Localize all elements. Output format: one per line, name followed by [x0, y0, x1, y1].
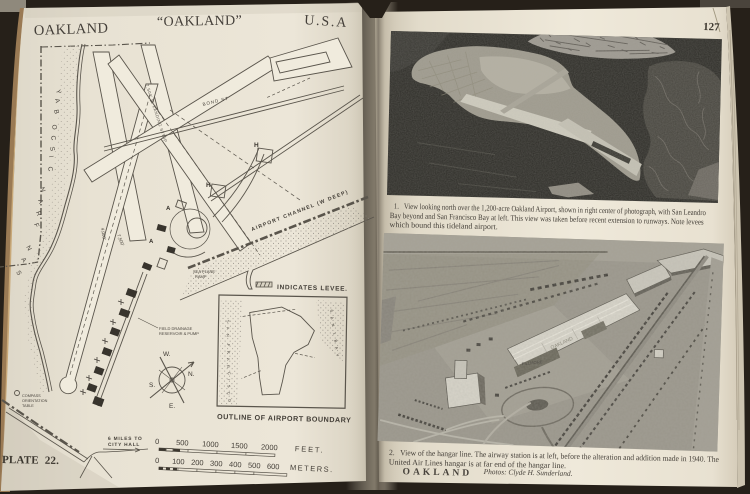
- svg-text:“OAKLAND”: “OAKLAND”: [157, 13, 242, 29]
- svg-text:OAKLAND: OAKLAND: [402, 467, 472, 478]
- svg-text:Photos: Clyde H. Sunderland.: Photos: Clyde H. Sunderland.: [483, 467, 573, 478]
- svg-text:400: 400: [229, 460, 242, 470]
- svg-text:6 MILES TO: 6 MILES TO: [108, 436, 143, 442]
- svg-text:500: 500: [176, 438, 189, 448]
- svg-text:CITY HALL: CITY HALL: [108, 442, 140, 448]
- svg-text:127: 127: [703, 21, 720, 34]
- svg-text:A: A: [149, 238, 154, 245]
- svg-text:1500: 1500: [231, 441, 248, 451]
- svg-text:A: A: [166, 205, 171, 212]
- svg-text:N.: N.: [188, 371, 195, 378]
- svg-text:OAKLAND: OAKLAND: [34, 20, 109, 39]
- svg-text:COMPASS: COMPASS: [22, 394, 41, 398]
- svg-text:200: 200: [191, 458, 204, 468]
- svg-text:0: 0: [155, 456, 160, 465]
- svg-text:2000: 2000: [261, 442, 278, 452]
- svg-text:S.: S.: [149, 382, 155, 389]
- svg-text:W.: W.: [163, 351, 171, 358]
- svg-text:H: H: [206, 182, 211, 189]
- svg-text:300: 300: [210, 459, 223, 469]
- svg-text:500: 500: [248, 461, 261, 471]
- svg-text:ORIENTATION: ORIENTATION: [22, 399, 48, 403]
- svg-text:RESERVOIR & PUMP: RESERVOIR & PUMP: [159, 331, 199, 336]
- svg-text:E.: E.: [169, 403, 175, 410]
- svg-text:U.S.A: U.S.A: [304, 13, 349, 31]
- svg-text:1000: 1000: [202, 439, 219, 449]
- svg-text:100: 100: [172, 457, 185, 467]
- svg-text:TABLE: TABLE: [22, 404, 34, 408]
- svg-text:FEET.: FEET.: [295, 444, 325, 455]
- svg-text:600: 600: [267, 462, 280, 472]
- svg-text:PLATE 22.: PLATE 22.: [2, 454, 59, 467]
- svg-text:H: H: [254, 142, 259, 149]
- svg-text:0: 0: [155, 437, 160, 446]
